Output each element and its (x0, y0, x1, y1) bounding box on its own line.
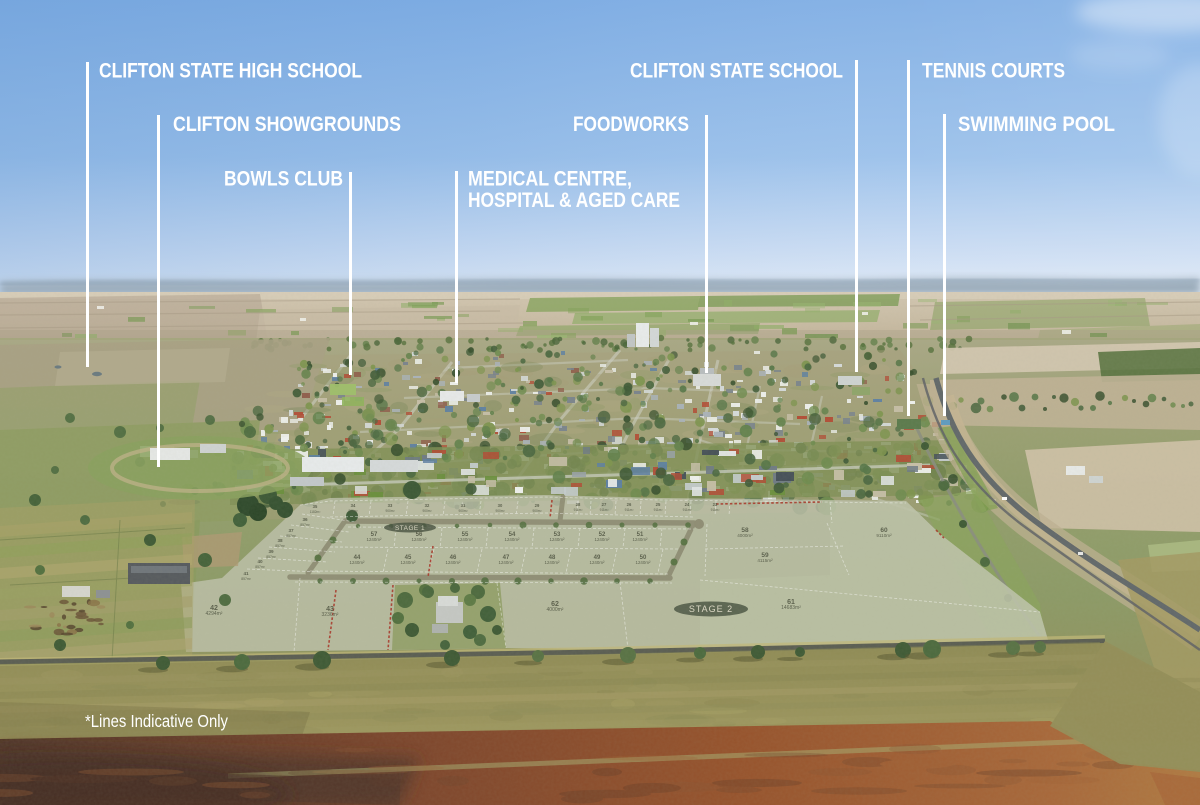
svg-text:HOSPITAL & AGED CARE: HOSPITAL & AGED CARE (468, 188, 680, 212)
svg-text:CLIFTON SHOWGROUNDS: CLIFTON SHOWGROUNDS (173, 112, 401, 136)
svg-text:SWIMMING POOL: SWIMMING POOL (958, 112, 1115, 136)
svg-text:*Lines Indicative Only: *Lines Indicative Only (85, 711, 228, 731)
svg-text:TENNIS COURTS: TENNIS COURTS (922, 59, 1065, 83)
svg-text:CLIFTON STATE SCHOOL: CLIFTON STATE SCHOOL (630, 59, 843, 83)
svg-text:BOWLS CLUB: BOWLS CLUB (224, 167, 343, 191)
svg-text:MEDICAL CENTRE,: MEDICAL CENTRE, (468, 167, 632, 191)
svg-text:CLIFTON STATE HIGH SCHOOL: CLIFTON STATE HIGH SCHOOL (99, 59, 362, 83)
svg-text:FOODWORKS: FOODWORKS (573, 112, 689, 136)
